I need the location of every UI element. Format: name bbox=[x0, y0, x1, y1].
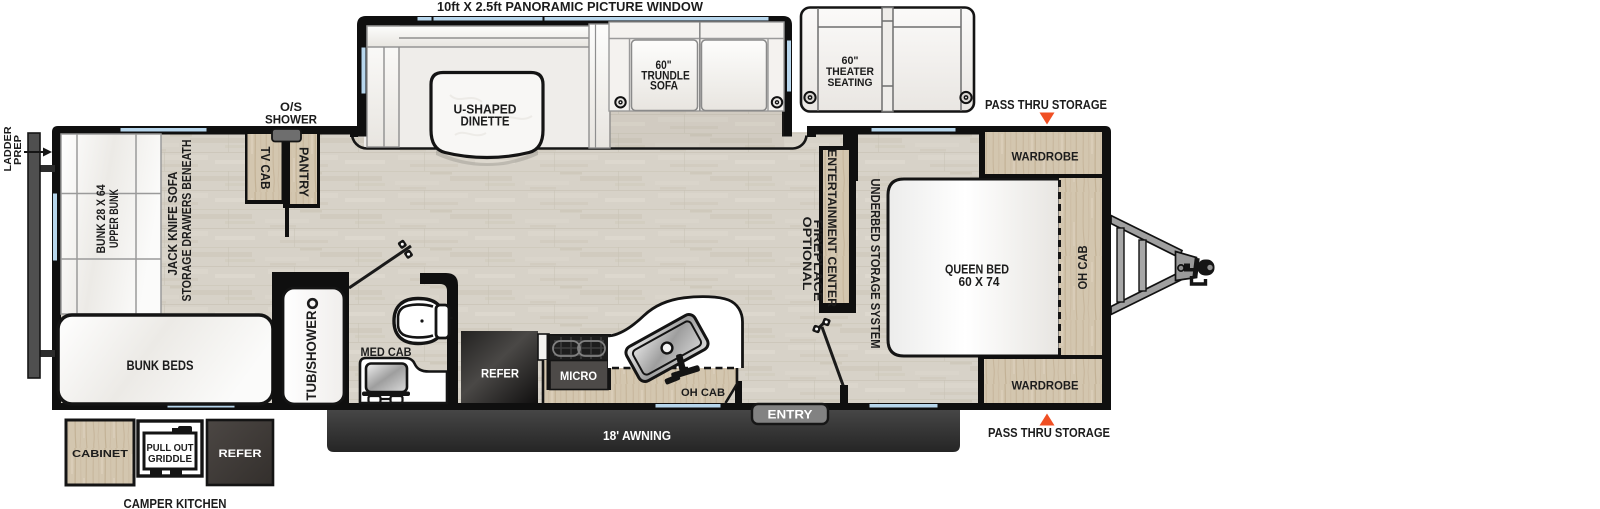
svg-text:SHOWER: SHOWER bbox=[265, 115, 318, 127]
svg-text:DINETTE: DINETTE bbox=[461, 114, 510, 129]
svg-text:OH CAB: OH CAB bbox=[1076, 246, 1090, 290]
svg-text:18' AWNING: 18' AWNING bbox=[603, 429, 671, 443]
svg-text:WARDROBE: WARDROBE bbox=[1012, 150, 1079, 164]
svg-text:10ft X 2.5ft PANORAMIC PICTURE: 10ft X 2.5ft PANORAMIC PICTURE WINDOW bbox=[437, 0, 704, 14]
svg-text:REFER: REFER bbox=[481, 367, 519, 381]
svg-text:REFER: REFER bbox=[219, 448, 262, 460]
svg-text:MICRO: MICRO bbox=[560, 369, 597, 383]
svg-text:ENTRY: ENTRY bbox=[768, 408, 813, 422]
svg-text:GRIDDLE: GRIDDLE bbox=[148, 454, 192, 465]
svg-text:JACK KNIFE SOFA: JACK KNIFE SOFA bbox=[166, 172, 180, 276]
svg-text:60 X 74: 60 X 74 bbox=[959, 274, 1001, 289]
svg-text:OPTIONAL: OPTIONAL bbox=[800, 217, 812, 291]
svg-text:PASS THRU STORAGE: PASS THRU STORAGE bbox=[988, 426, 1110, 440]
svg-text:SEATING: SEATING bbox=[828, 77, 873, 89]
svg-text:STORAGE DRAWERS BENEATH: STORAGE DRAWERS BENEATH bbox=[180, 140, 194, 302]
svg-text:ENTERTAINMENT CENTER: ENTERTAINMENT CENTER bbox=[825, 149, 839, 307]
svg-text:CAMPER KITCHEN: CAMPER KITCHEN bbox=[124, 497, 227, 509]
svg-text:UPPER BUNK: UPPER BUNK bbox=[107, 189, 121, 248]
svg-text:WARDROBE: WARDROBE bbox=[1012, 379, 1079, 393]
svg-text:OH CAB: OH CAB bbox=[681, 387, 725, 399]
svg-text:PANTRY: PANTRY bbox=[297, 147, 311, 198]
svg-text:TV CAB: TV CAB bbox=[258, 147, 272, 190]
svg-text:BUNK BEDS: BUNK BEDS bbox=[127, 358, 194, 373]
svg-text:PULL OUT: PULL OUT bbox=[147, 443, 194, 454]
svg-text:O/S: O/S bbox=[280, 102, 302, 114]
svg-text:CABINET: CABINET bbox=[72, 448, 129, 460]
svg-text:TUB/SHOWER: TUB/SHOWER bbox=[303, 311, 319, 401]
svg-text:FIREPLACE: FIREPLACE bbox=[811, 220, 823, 302]
svg-text:SOFA: SOFA bbox=[650, 81, 678, 93]
svg-text:BUNK 28 X 64: BUNK 28 X 64 bbox=[94, 184, 108, 253]
svg-text:PREP: PREP bbox=[12, 135, 24, 165]
svg-text:UNDERBED STORAGE SYSTEM: UNDERBED STORAGE SYSTEM bbox=[868, 179, 882, 349]
svg-text:PASS THRU STORAGE: PASS THRU STORAGE bbox=[985, 98, 1107, 112]
